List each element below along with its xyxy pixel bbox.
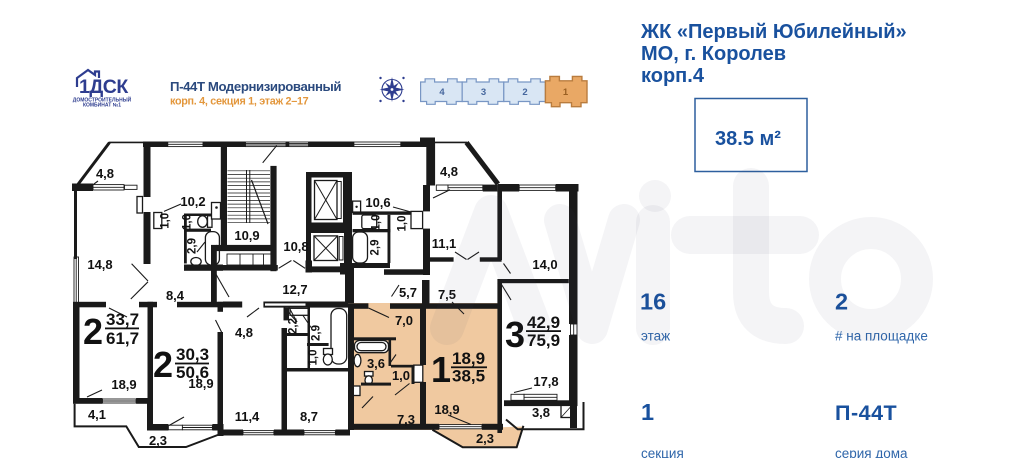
svg-text:50,6: 50,6 — [176, 363, 209, 382]
svg-text:3,6: 3,6 — [367, 356, 385, 371]
svg-text:4,8: 4,8 — [235, 325, 253, 340]
svg-text:11,4: 11,4 — [235, 409, 260, 424]
svg-text:17,8: 17,8 — [533, 374, 558, 389]
svg-text:2,2: 2,2 — [288, 318, 300, 334]
svg-text:2: 2 — [83, 311, 103, 352]
svg-text:12,7: 12,7 — [282, 282, 307, 297]
svg-text:33,7: 33,7 — [106, 310, 139, 329]
svg-text:П-44Т: П-44Т — [835, 401, 897, 425]
svg-text:10,9: 10,9 — [234, 228, 259, 243]
svg-text:18,9: 18,9 — [111, 377, 136, 392]
svg-text:1,0: 1,0 — [308, 350, 320, 366]
svg-text:1: 1 — [563, 87, 569, 98]
svg-text:1,0: 1,0 — [182, 214, 194, 230]
svg-text:секция: секция — [641, 446, 684, 458]
svg-text:4: 4 — [439, 87, 445, 98]
svg-text:МО, г. Королев: МО, г. Королев — [641, 43, 786, 65]
svg-text:4,1: 4,1 — [88, 407, 106, 422]
svg-text:8,4: 8,4 — [166, 288, 185, 303]
svg-text:38.5 м²: 38.5 м² — [715, 128, 781, 150]
svg-text:2,3: 2,3 — [476, 431, 494, 446]
svg-text:4,8: 4,8 — [440, 164, 458, 179]
svg-text:1,0: 1,0 — [392, 368, 410, 383]
svg-text:1,0: 1,0 — [160, 213, 172, 229]
svg-text:2: 2 — [522, 87, 527, 98]
svg-text:корп. 4, секция 1, этаж 2–17: корп. 4, секция 1, этаж 2–17 — [170, 96, 309, 108]
svg-text:30,3: 30,3 — [176, 345, 209, 364]
svg-text:10,8: 10,8 — [283, 239, 308, 254]
svg-text:8,7: 8,7 — [300, 409, 318, 424]
svg-text:2,9: 2,9 — [187, 238, 199, 254]
svg-text:КОМБИНАТ №1: КОМБИНАТ №1 — [83, 103, 121, 109]
svg-text:18,9: 18,9 — [434, 402, 459, 417]
svg-text:3: 3 — [481, 87, 486, 98]
svg-text:14,0: 14,0 — [532, 257, 557, 272]
svg-text:1ДСК: 1ДСК — [79, 76, 128, 98]
svg-text:1: 1 — [431, 349, 451, 390]
svg-text:7,3: 7,3 — [397, 412, 415, 427]
svg-text:1: 1 — [641, 399, 654, 425]
svg-text:1,0: 1,0 — [371, 215, 383, 231]
svg-text:1,0: 1,0 — [397, 216, 409, 232]
svg-text:2: 2 — [153, 344, 173, 385]
svg-text:корп.4: корп.4 — [641, 65, 705, 87]
svg-text:38,5: 38,5 — [452, 367, 485, 386]
svg-text:2,9: 2,9 — [311, 325, 323, 341]
svg-text:61,7: 61,7 — [106, 329, 139, 348]
svg-text:3,8: 3,8 — [532, 405, 550, 420]
svg-text:4,8: 4,8 — [96, 166, 114, 181]
svg-text:10,2: 10,2 — [180, 194, 205, 209]
svg-text:18,9: 18,9 — [452, 349, 485, 368]
svg-text:2,9: 2,9 — [370, 240, 382, 256]
svg-text:П-44Т Модернизированный: П-44Т Модернизированный — [170, 79, 341, 94]
svg-text:5,7: 5,7 — [399, 285, 417, 300]
svg-text:серия дома: серия дома — [835, 446, 908, 458]
svg-text:14,8: 14,8 — [87, 257, 112, 272]
svg-text:11,1: 11,1 — [432, 236, 457, 251]
svg-text:2,3: 2,3 — [149, 433, 167, 448]
svg-text:10,6: 10,6 — [365, 195, 390, 210]
svg-text:7,0: 7,0 — [395, 313, 413, 328]
svg-text:ЖК «Первый Юбилейный»: ЖК «Первый Юбилейный» — [640, 21, 907, 43]
